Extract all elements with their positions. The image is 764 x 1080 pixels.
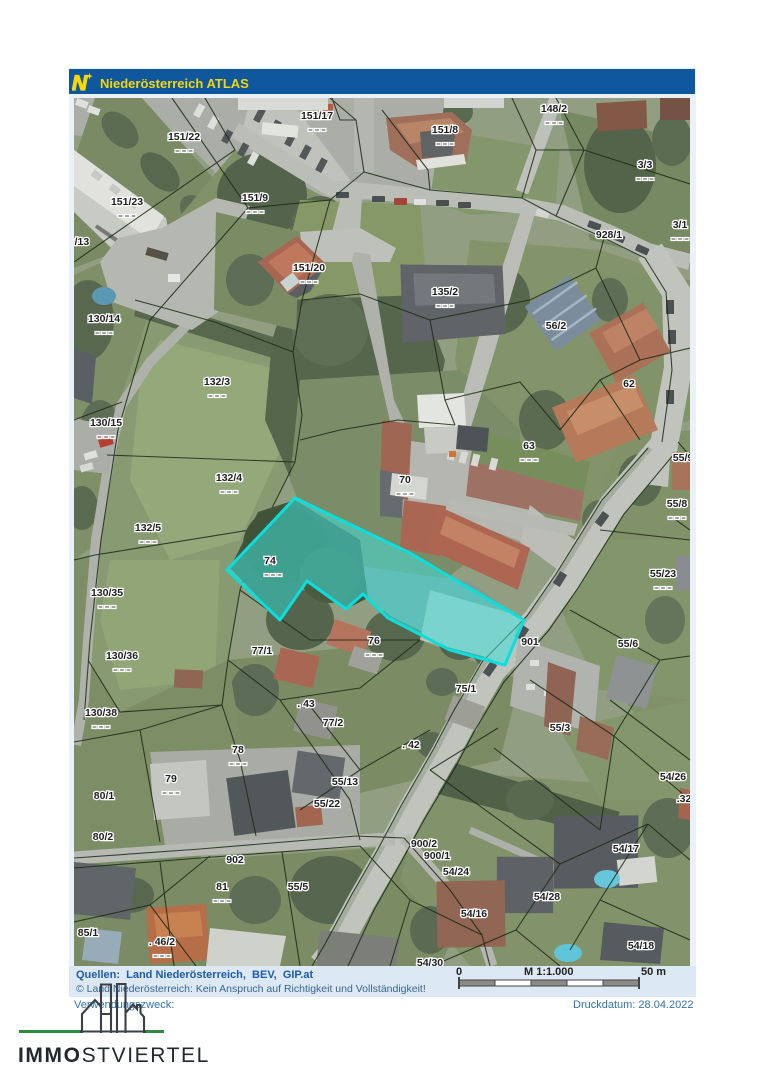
svg-text:135/2: 135/2 bbox=[432, 286, 458, 298]
svg-text:3/3: 3/3 bbox=[638, 159, 653, 171]
svg-text:75/1: 75/1 bbox=[456, 683, 477, 695]
svg-text:54/16: 54/16 bbox=[461, 908, 487, 920]
svg-text:55/5: 55/5 bbox=[288, 881, 309, 893]
svg-text:74: 74 bbox=[264, 555, 276, 567]
svg-text:55/9: 55/9 bbox=[673, 452, 690, 464]
svg-text:N: N bbox=[72, 72, 88, 93]
svg-text:928/1: 928/1 bbox=[596, 229, 622, 241]
svg-text:63: 63 bbox=[523, 440, 535, 452]
svg-text:132/3: 132/3 bbox=[204, 376, 230, 388]
svg-text:80/1: 80/1 bbox=[94, 790, 115, 802]
svg-text:77/1: 77/1 bbox=[252, 645, 273, 657]
svg-text:151/22: 151/22 bbox=[168, 131, 200, 143]
svg-text:56/2: 56/2 bbox=[546, 320, 567, 332]
svg-text:. 46/2: . 46/2 bbox=[149, 936, 175, 948]
svg-text:130/35: 130/35 bbox=[91, 587, 123, 599]
svg-text:151/9: 151/9 bbox=[242, 192, 268, 204]
svg-text:901: 901 bbox=[521, 636, 539, 648]
svg-text:902: 902 bbox=[226, 854, 244, 866]
svg-text:78: 78 bbox=[232, 744, 244, 756]
svg-text:130/36: 130/36 bbox=[106, 650, 138, 662]
svg-text:151/8: 151/8 bbox=[432, 124, 458, 136]
svg-text:151/20: 151/20 bbox=[293, 262, 325, 274]
svg-text:900/1: 900/1 bbox=[424, 850, 450, 862]
svg-text:85/1: 85/1 bbox=[78, 927, 99, 939]
svg-text:54/17: 54/17 bbox=[613, 843, 639, 855]
svg-text:55/13: 55/13 bbox=[332, 776, 358, 788]
svg-text:54/18: 54/18 bbox=[628, 940, 654, 952]
svg-text:132/4: 132/4 bbox=[216, 472, 242, 484]
svg-text:54/30: 54/30 bbox=[417, 957, 443, 966]
svg-text:55/22: 55/22 bbox=[314, 798, 340, 810]
svg-text:77/2: 77/2 bbox=[323, 717, 344, 729]
svg-text:151/17: 151/17 bbox=[301, 110, 333, 122]
svg-text:55/3: 55/3 bbox=[550, 722, 571, 734]
svg-text:130/15: 130/15 bbox=[90, 417, 122, 429]
svg-text:55/6: 55/6 bbox=[618, 638, 639, 650]
svg-text:0/13: 0/13 bbox=[74, 236, 89, 248]
svg-text:54/28: 54/28 bbox=[534, 891, 560, 903]
svg-text:130/38: 130/38 bbox=[85, 707, 117, 719]
svg-text:70: 70 bbox=[399, 474, 411, 486]
svg-text:.32: .32 bbox=[677, 793, 690, 805]
svg-text:80/2: 80/2 bbox=[93, 831, 114, 843]
svg-text:132/5: 132/5 bbox=[135, 522, 161, 534]
svg-text:151/23: 151/23 bbox=[111, 196, 143, 208]
svg-text:81: 81 bbox=[216, 881, 228, 893]
svg-text:54/26: 54/26 bbox=[660, 771, 686, 783]
svg-text:3/1: 3/1 bbox=[673, 219, 688, 231]
svg-text:148/2: 148/2 bbox=[541, 103, 567, 115]
svg-text:. 43: . 43 bbox=[297, 698, 315, 710]
svg-text:55/8: 55/8 bbox=[667, 498, 688, 510]
svg-text:79: 79 bbox=[165, 773, 177, 785]
svg-text:62: 62 bbox=[623, 378, 635, 390]
svg-text:. 42: . 42 bbox=[402, 739, 420, 751]
svg-text:130/14: 130/14 bbox=[88, 313, 120, 325]
svg-text:55/23: 55/23 bbox=[650, 568, 676, 580]
svg-text:900/2: 900/2 bbox=[411, 838, 437, 850]
svg-text:76: 76 bbox=[368, 635, 380, 647]
svg-text:54/24: 54/24 bbox=[443, 866, 469, 878]
